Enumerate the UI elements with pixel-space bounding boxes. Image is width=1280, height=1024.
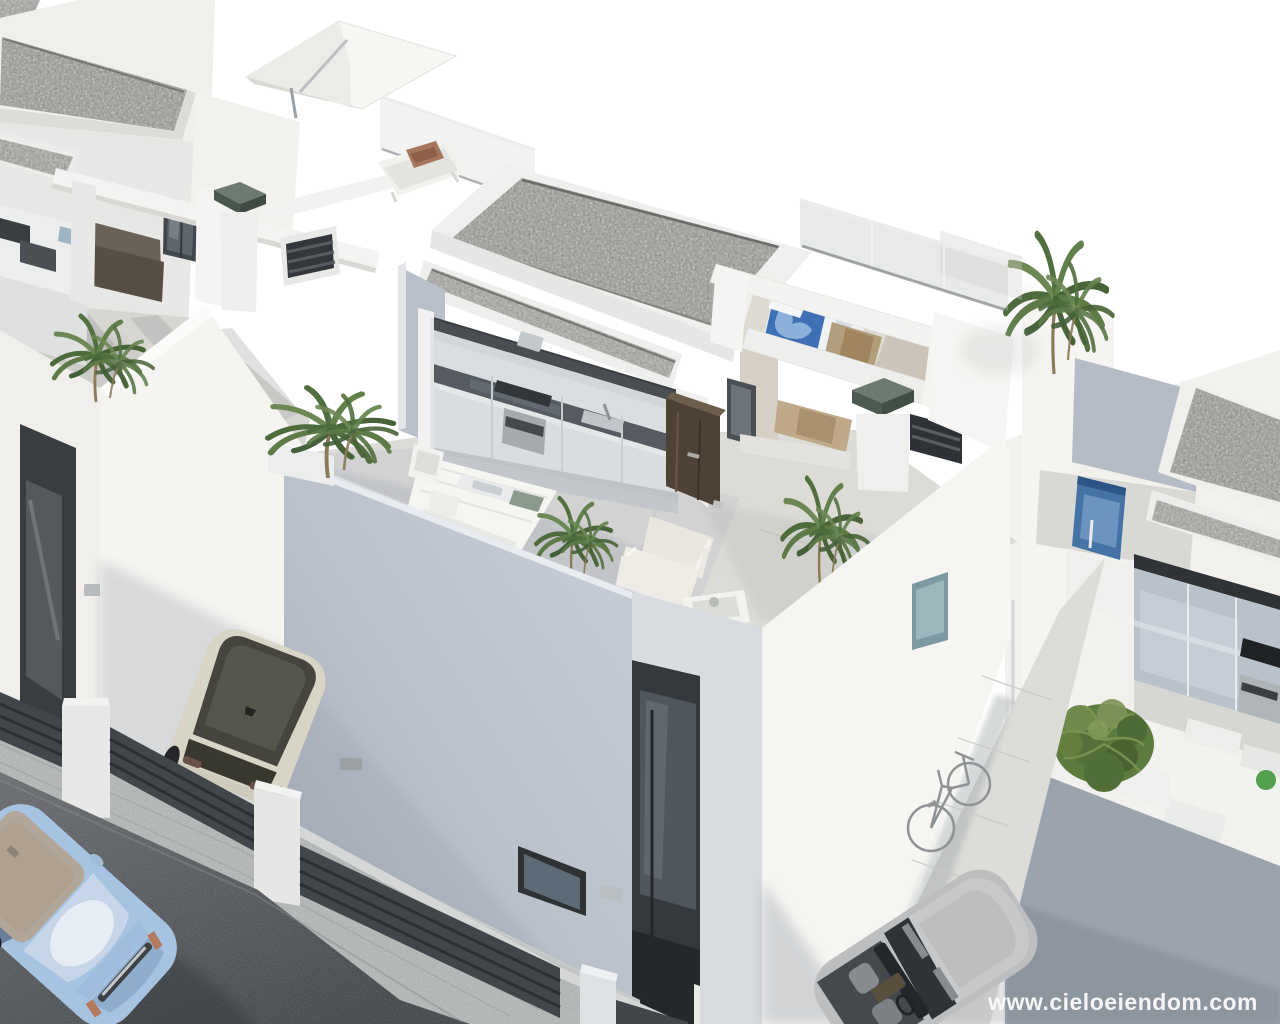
svg-text:www.cieloeiendom.com: www.cieloeiendom.com <box>987 989 1258 1015</box>
